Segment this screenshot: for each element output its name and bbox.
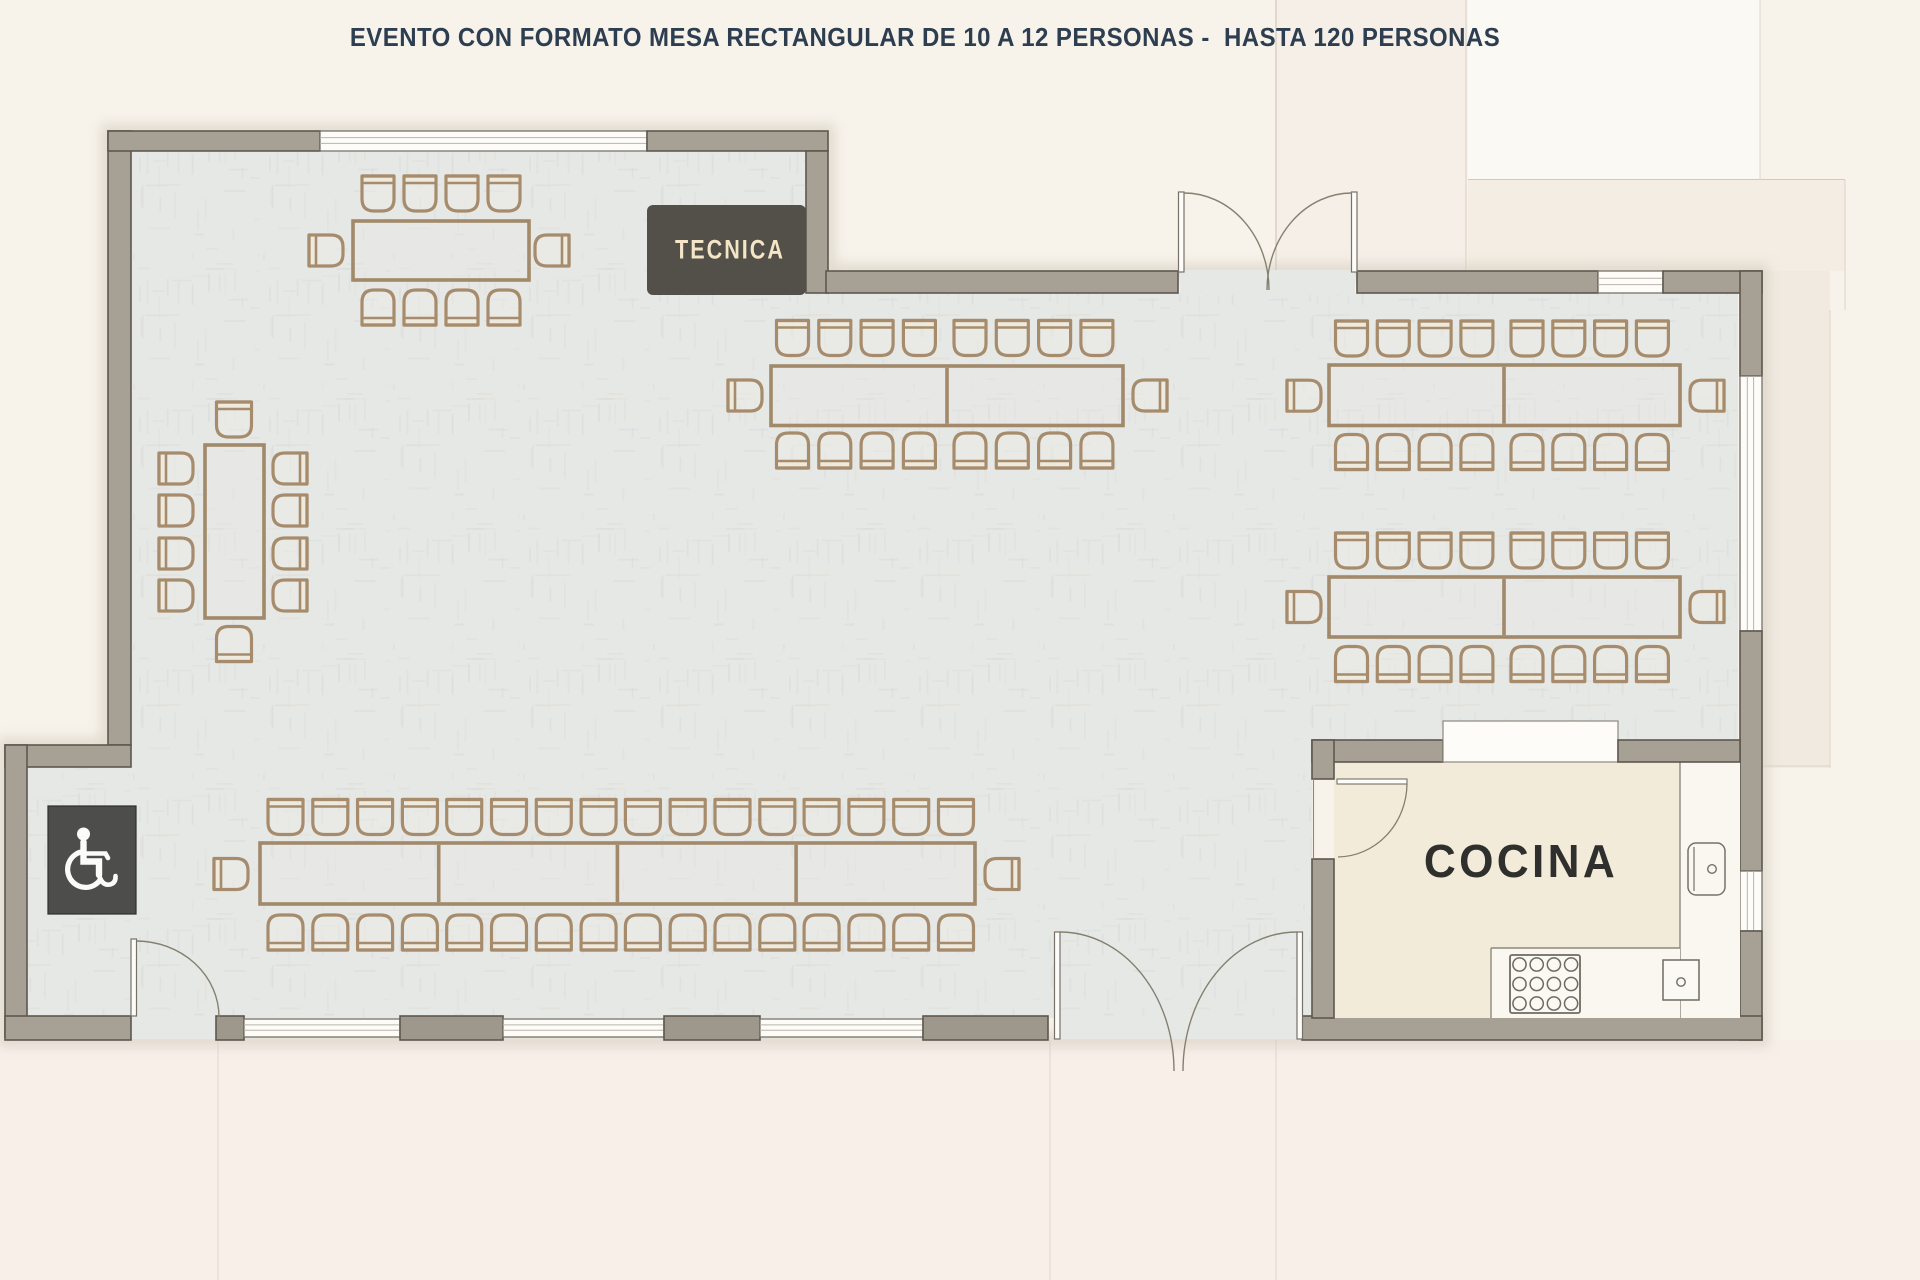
svg-text:COCINA: COCINA: [1424, 835, 1618, 887]
svg-text:EVENTO CON FORMATO MESA RECTAN: EVENTO CON FORMATO MESA RECTANGULAR DE 1…: [350, 23, 1500, 52]
svg-text:TECNICA: TECNICA: [675, 235, 785, 265]
